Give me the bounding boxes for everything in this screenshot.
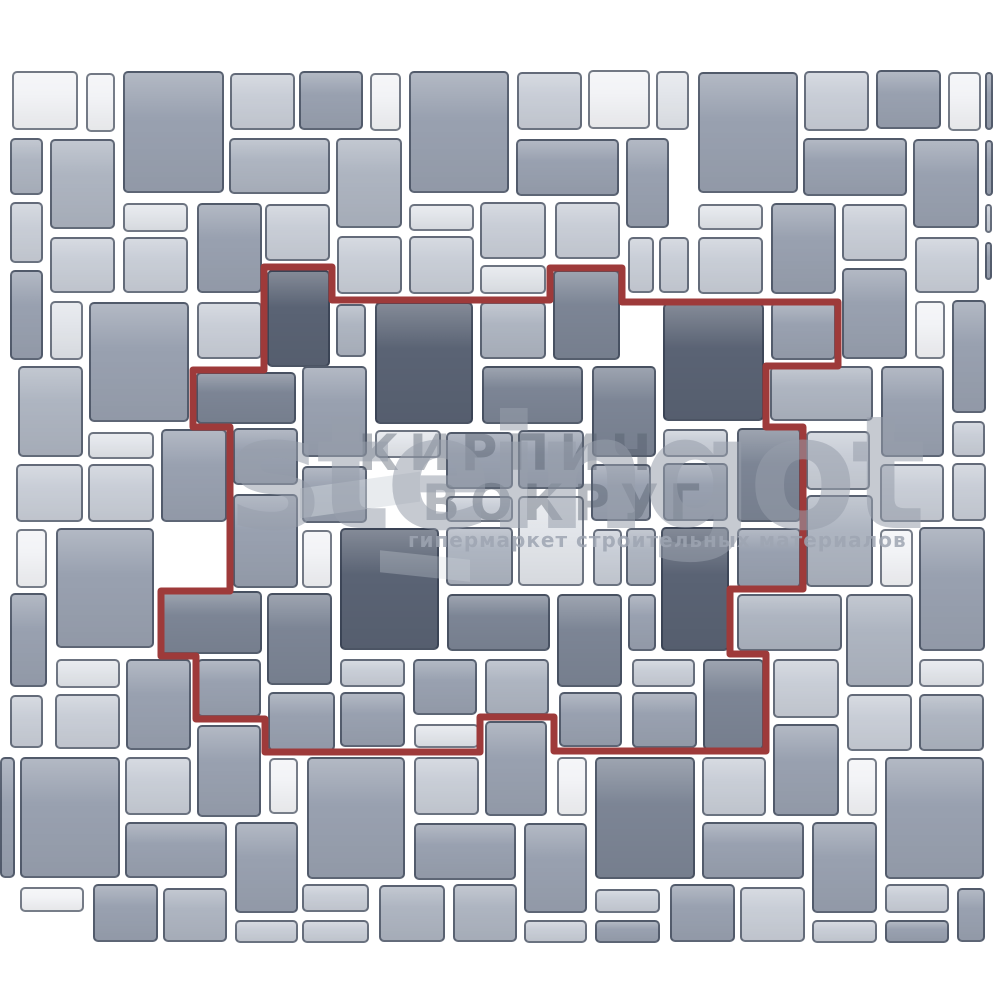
- paving-tile: [89, 302, 189, 422]
- paving-tile: [524, 920, 587, 943]
- paving-tile: [55, 694, 120, 749]
- paving-tile: [86, 73, 115, 132]
- paving-tile: [919, 694, 984, 751]
- paving-tile: [375, 302, 473, 424]
- paving-tile: [302, 366, 367, 457]
- paving-tile: [20, 757, 120, 878]
- paving-tile: [803, 138, 907, 196]
- paving-tile: [197, 302, 262, 359]
- paving-tile: [557, 757, 587, 816]
- paving-tile: [702, 822, 804, 879]
- paving-tile: [518, 430, 584, 489]
- paving-tiles-layer: [0, 0, 1000, 943]
- paving-tile: [740, 887, 805, 942]
- paving-tile: [518, 496, 584, 586]
- paving-tile: [446, 527, 513, 586]
- paving-tile: [409, 71, 509, 193]
- paving-tile: [985, 72, 993, 130]
- paving-tile: [885, 884, 949, 913]
- paving-tile: [302, 920, 369, 943]
- paving-tile: [336, 304, 366, 357]
- paving-tile: [656, 71, 689, 130]
- paving-tile: [846, 594, 913, 687]
- paving-tile: [663, 463, 728, 521]
- paving-tile: [812, 920, 877, 943]
- paving-tile: [93, 884, 158, 942]
- paving-tile: [913, 139, 979, 228]
- paving-tile: [952, 463, 986, 521]
- paving-tile: [480, 302, 546, 359]
- paving-tile: [302, 466, 367, 523]
- paving-tile: [555, 202, 620, 259]
- paving-tile: [235, 920, 298, 943]
- paving-tile: [703, 659, 764, 750]
- paving-tile: [10, 593, 47, 687]
- paving-tile: [626, 528, 656, 586]
- paving-tile: [409, 204, 474, 231]
- paving-tile: [480, 265, 546, 294]
- paving-tile: [485, 721, 547, 816]
- paving-tile: [591, 464, 651, 521]
- paving-tile: [881, 366, 944, 457]
- paving-tile: [663, 429, 728, 457]
- paving-tile: [806, 431, 870, 490]
- paving-tile: [302, 884, 369, 912]
- paving-tile: [985, 140, 993, 196]
- paving-tile: [480, 202, 546, 259]
- paving-tile: [370, 73, 401, 131]
- paving-tile: [50, 237, 115, 293]
- paving-tile: [16, 529, 47, 588]
- paving-tile: [595, 920, 660, 943]
- paving-tile: [588, 70, 650, 129]
- paving-tile: [269, 758, 298, 814]
- paving-tile: [414, 757, 479, 815]
- paving-tile: [0, 757, 15, 878]
- paving-tile: [952, 421, 985, 457]
- paving-tile: [770, 366, 873, 421]
- paving-tile: [771, 302, 836, 360]
- paving-tile: [10, 138, 43, 195]
- paving-tile: [414, 724, 479, 748]
- paving-tile: [737, 594, 842, 651]
- paving-tile: [233, 494, 298, 588]
- paving-tile: [267, 593, 332, 685]
- paving-tile: [196, 372, 296, 424]
- paving-tile: [10, 202, 43, 263]
- paving-tile: [595, 889, 660, 913]
- paving-tile: [516, 139, 619, 196]
- paving-tile: [482, 366, 583, 424]
- paving-tile: [299, 71, 363, 130]
- paving-tile: [229, 138, 330, 194]
- paving-tile: [265, 204, 330, 261]
- paving-tile: [375, 430, 441, 458]
- paving-tile: [379, 885, 445, 942]
- paving-tile: [842, 204, 907, 261]
- paving-tile: [413, 659, 477, 715]
- paving-tile: [10, 695, 43, 748]
- paving-tile: [197, 203, 262, 293]
- paving-tile: [559, 692, 622, 747]
- paving-tile: [773, 659, 839, 718]
- paving-tile: [876, 70, 941, 129]
- paving-tile: [919, 527, 985, 651]
- paving-tile: [804, 71, 869, 131]
- paving-tile: [915, 237, 979, 293]
- paving-tile: [595, 757, 695, 879]
- paving-tile: [302, 530, 332, 588]
- paving-tile: [952, 300, 986, 413]
- paving-tile: [553, 270, 620, 360]
- paving-tile: [123, 71, 224, 193]
- paving-tile: [123, 237, 188, 293]
- paving-tile: [163, 888, 227, 942]
- paving-tile: [446, 496, 513, 522]
- paving-tile: [307, 757, 405, 879]
- paving-tile: [197, 659, 261, 717]
- paving-tile: [337, 236, 402, 294]
- paving-tile: [663, 303, 764, 421]
- paving-tile: [737, 528, 801, 588]
- paving-tile: [50, 139, 115, 229]
- paving-tile: [18, 366, 83, 457]
- paving-tile: [340, 528, 439, 650]
- paving-tile: [233, 428, 298, 485]
- paving-tile: [880, 529, 913, 587]
- paving-tile: [880, 464, 944, 522]
- paving-tile: [771, 203, 836, 294]
- paving-pattern-scheme: КИРПИЧ ВОКРУГ steingot гипермаркет строи…: [0, 0, 1000, 1000]
- paving-tile: [447, 594, 550, 651]
- paving-tile: [885, 920, 949, 943]
- paving-tile: [88, 464, 154, 522]
- paving-tile: [659, 237, 689, 293]
- paving-tile: [123, 203, 188, 232]
- paving-tile: [593, 529, 622, 586]
- paving-tile: [268, 692, 335, 751]
- paving-tile: [267, 270, 330, 367]
- paving-tile: [56, 528, 154, 648]
- paving-tile: [446, 432, 513, 489]
- paving-tile: [16, 464, 83, 522]
- paving-tile: [702, 757, 766, 816]
- paving-tile: [806, 495, 873, 587]
- paving-tile: [957, 888, 985, 942]
- paving-tile: [628, 237, 654, 293]
- paving-tile: [670, 884, 735, 942]
- paving-tile: [985, 242, 992, 280]
- paving-tile: [737, 428, 801, 522]
- paving-tile: [409, 236, 474, 294]
- paving-tile: [661, 527, 729, 651]
- paving-tile: [414, 823, 516, 880]
- paving-tile: [453, 884, 517, 942]
- paving-tile: [632, 659, 695, 687]
- paving-tile: [773, 724, 839, 816]
- paving-tile: [628, 594, 656, 651]
- paving-tile: [125, 757, 191, 815]
- paving-tile: [847, 694, 912, 751]
- paving-tile: [126, 659, 191, 750]
- paving-tile: [592, 366, 656, 457]
- paving-tile: [885, 757, 984, 879]
- paving-tile: [698, 72, 798, 193]
- paving-tile: [698, 237, 763, 294]
- paving-tile: [56, 659, 120, 688]
- paving-tile: [915, 301, 945, 359]
- paving-tile: [632, 692, 697, 748]
- paving-tile: [626, 138, 669, 228]
- paving-tile: [485, 659, 549, 715]
- paving-tile: [919, 659, 984, 687]
- paving-tile: [985, 204, 992, 233]
- paving-tile: [12, 71, 78, 130]
- paving-tile: [336, 138, 402, 228]
- paving-tile: [948, 72, 981, 131]
- paving-tile: [812, 822, 877, 913]
- paving-tile: [340, 692, 405, 747]
- paving-tile: [20, 887, 84, 912]
- paving-tile: [88, 432, 154, 459]
- paving-tile: [842, 268, 907, 359]
- paving-tile: [230, 73, 295, 130]
- paving-tile: [557, 594, 622, 687]
- paving-tile: [197, 725, 261, 817]
- paving-tile: [161, 429, 227, 522]
- paving-tile: [698, 204, 763, 230]
- paving-tile: [517, 72, 582, 130]
- paving-tile: [847, 758, 877, 816]
- paving-tile: [235, 822, 298, 913]
- paving-tile: [125, 822, 227, 878]
- paving-tile: [10, 270, 43, 360]
- paving-tile: [160, 591, 262, 654]
- paving-tile: [50, 301, 83, 360]
- paving-tile: [340, 659, 405, 687]
- paving-tile: [524, 823, 587, 913]
